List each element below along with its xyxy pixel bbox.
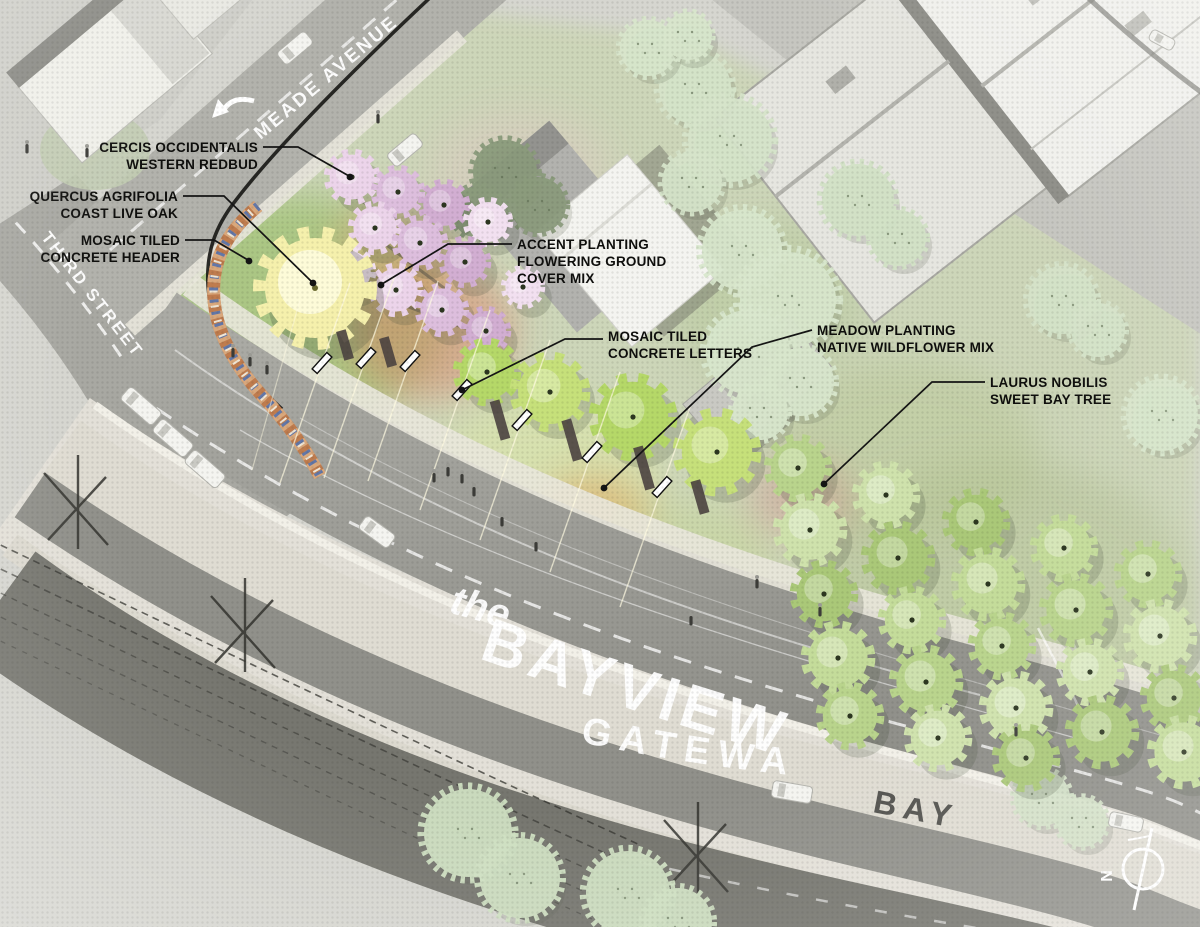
pedestrian bbox=[818, 603, 822, 617]
pedestrian bbox=[376, 110, 380, 124]
annotation-text: COVER MIX bbox=[517, 271, 595, 286]
annotation-text: LAURUS NOBILIS bbox=[990, 375, 1108, 390]
pedestrian bbox=[265, 361, 269, 375]
site-plan-rendering: MEADE AVENUE THIRD STREET BAY the BAYVIE… bbox=[0, 0, 1200, 927]
annotation-text: FLOWERING GROUND bbox=[517, 254, 666, 269]
pedestrian bbox=[432, 469, 436, 483]
annotation-text: MOSAIC TILED bbox=[81, 233, 180, 248]
annotation-text: MEADOW PLANTING bbox=[817, 323, 956, 338]
annotation-text: WESTERN REDBUD bbox=[126, 157, 258, 172]
pedestrian bbox=[460, 470, 464, 484]
pedestrian bbox=[689, 612, 693, 626]
annotation-text: ACCENT PLANTING bbox=[517, 237, 649, 252]
pedestrian bbox=[25, 140, 29, 154]
pedestrian bbox=[1014, 723, 1018, 737]
pedestrian bbox=[85, 144, 89, 158]
annotation-text: CONCRETE HEADER bbox=[40, 250, 180, 265]
pedestrian bbox=[446, 463, 450, 477]
pedestrian bbox=[755, 575, 759, 589]
annotation-text: CERCIS OCCIDENTALIS bbox=[99, 140, 258, 155]
annotation-text: MOSAIC TILED bbox=[608, 329, 707, 344]
pedestrian bbox=[248, 353, 252, 367]
pedestrian bbox=[500, 513, 504, 527]
plan-canvas: MEADE AVENUE THIRD STREET BAY the BAYVIE… bbox=[0, 0, 1200, 927]
north-label: N bbox=[1099, 870, 1116, 882]
pedestrian bbox=[472, 483, 476, 497]
annotation-text: QUERCUS AGRIFOLIA bbox=[30, 189, 178, 204]
pedestrian bbox=[231, 344, 235, 358]
annotation-text: CONCRETE LETTERS bbox=[608, 346, 752, 361]
annotation-text: SWEET BAY TREE bbox=[990, 392, 1111, 407]
pedestrian bbox=[534, 538, 538, 552]
annotation-text: NATIVE WILDFLOWER MIX bbox=[817, 340, 994, 355]
annotation-text: COAST LIVE OAK bbox=[60, 206, 178, 221]
